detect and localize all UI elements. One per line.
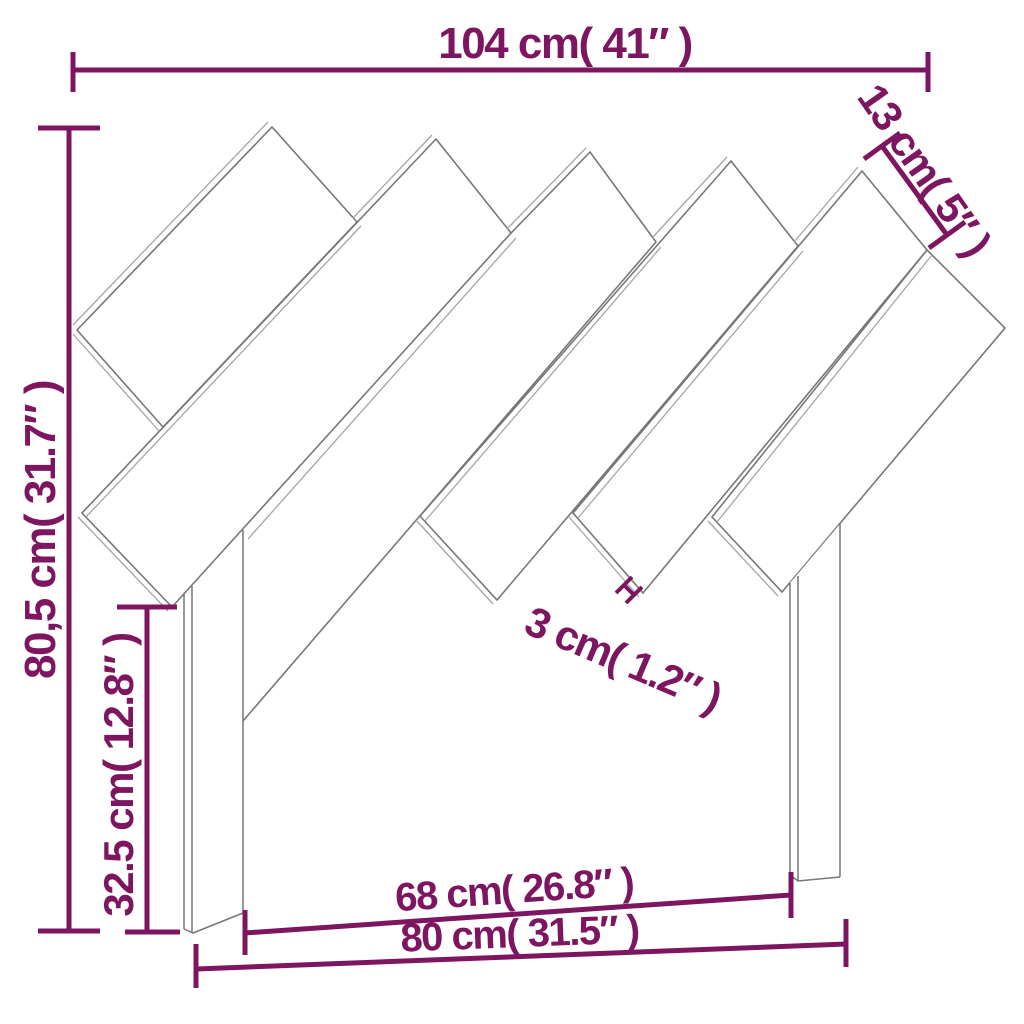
label-total-height: 80,5 cm( 31.7″ ) <box>16 381 65 679</box>
label-slat-gap: 3 cm( 1.2″ ) <box>518 597 727 721</box>
headboard-drawing: 104 cm( 41″ ) 80,5 cm( 31.7″ ) 32.5 cm( … <box>0 0 1024 1024</box>
label-outer-width: 80 cm( 31.5″ ) <box>400 907 640 960</box>
dimension-diagram: 104 cm( 41″ ) 80,5 cm( 31.7″ ) 32.5 cm( … <box>0 0 1024 1024</box>
right-leg <box>790 524 840 881</box>
label-leg-height: 32.5 cm( 12.8″ ) <box>95 633 142 916</box>
label-total-width: 104 cm( 41″ ) <box>438 19 692 68</box>
left-leg <box>184 529 243 933</box>
